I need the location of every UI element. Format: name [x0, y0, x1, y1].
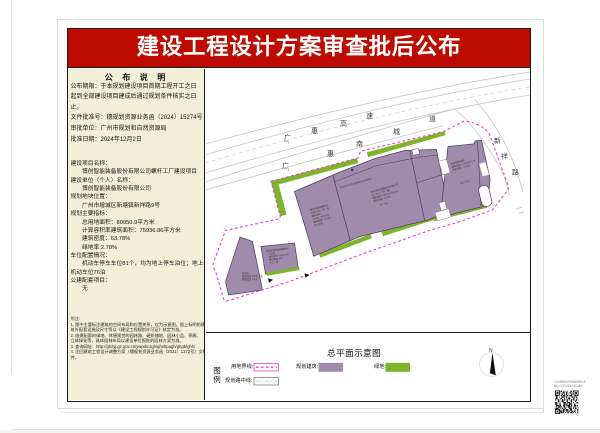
- svg-text:广州市规划和自然资源局规划公布: 广州市规划和自然资源局规划公布: [553, 380, 587, 384]
- svg-text:批后公布信息查询专用二维码: 批后公布信息查询专用二维码: [554, 384, 583, 388]
- svg-text:道: 道: [429, 114, 436, 123]
- svg-text:新: 新: [494, 136, 501, 145]
- svg-text:惠: 惠: [311, 126, 318, 135]
- svg-text:广: 广: [284, 133, 291, 142]
- svg-text:城: 城: [393, 128, 400, 136]
- svg-text:广: 广: [282, 161, 289, 170]
- svg-text:路: 路: [512, 168, 519, 177]
- svg-text:高: 高: [340, 119, 347, 128]
- svg-text:惠: 惠: [327, 149, 334, 158]
- svg-text:速: 速: [366, 112, 373, 120]
- svg-text:祥: 祥: [501, 152, 508, 161]
- svg-text:南: 南: [356, 139, 363, 148]
